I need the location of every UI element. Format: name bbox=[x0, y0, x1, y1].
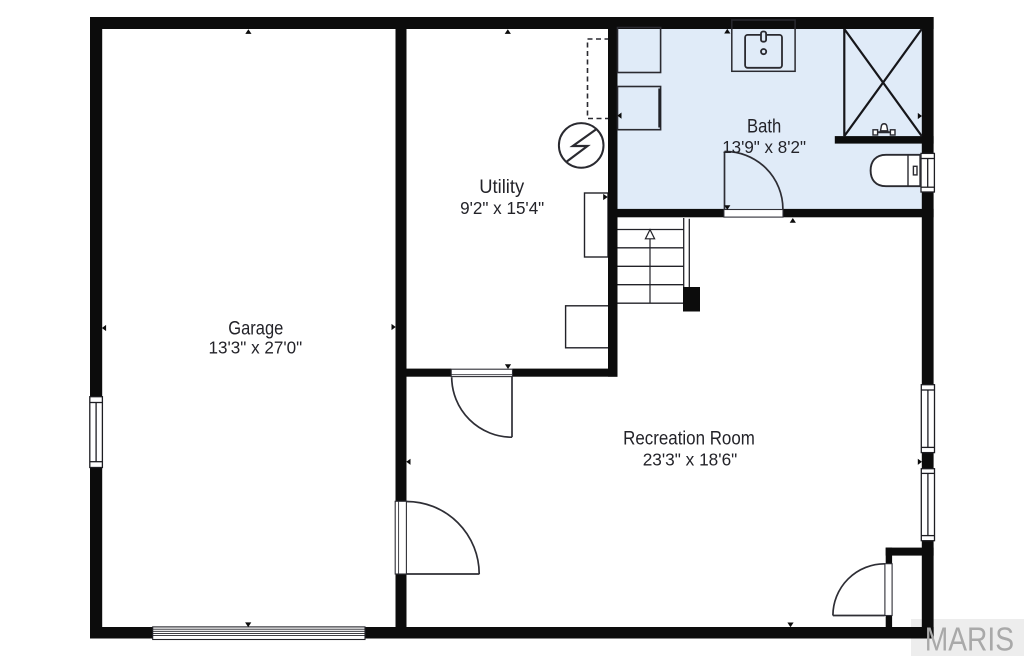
svg-text:9'2" x 15'4": 9'2" x 15'4" bbox=[460, 198, 544, 218]
svg-text:13'9" x 8'2": 13'9" x 8'2" bbox=[722, 137, 806, 157]
svg-text:23'3" x 18'6": 23'3" x 18'6" bbox=[643, 450, 738, 470]
svg-text:13'3" x 27'0": 13'3" x 27'0" bbox=[209, 338, 303, 358]
svg-text:Bath: Bath bbox=[747, 116, 781, 137]
svg-text:Utility: Utility bbox=[479, 177, 524, 198]
svg-text:Garage: Garage bbox=[228, 318, 283, 339]
svg-text:MARIS: MARIS bbox=[925, 621, 1014, 658]
svg-text:Recreation Room: Recreation Room bbox=[623, 428, 755, 449]
